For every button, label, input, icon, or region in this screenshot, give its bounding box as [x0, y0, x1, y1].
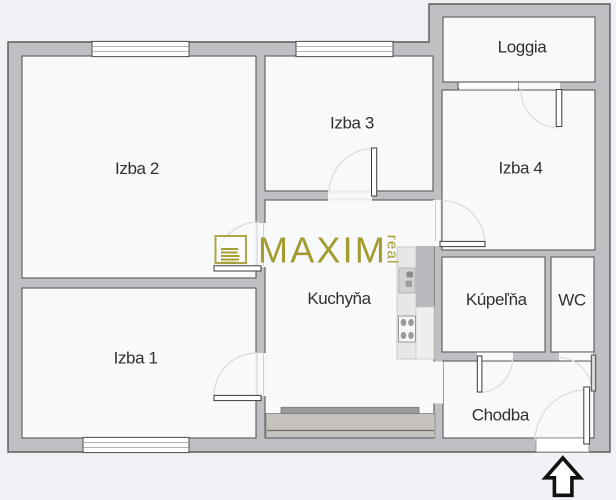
svg-text:Kúpeľňa: Kúpeľňa — [466, 290, 528, 309]
svg-text:Izba 4: Izba 4 — [499, 158, 543, 177]
svg-text:Izba 1: Izba 1 — [114, 349, 158, 368]
svg-text:Izba 2: Izba 2 — [115, 159, 159, 178]
svg-text:MAXIM: MAXIM — [258, 230, 387, 271]
svg-text:Izba 3: Izba 3 — [330, 114, 374, 133]
svg-text:Kuchyňa: Kuchyňa — [307, 289, 371, 308]
svg-text:real: real — [384, 235, 401, 265]
svg-text:WC: WC — [558, 290, 586, 309]
svg-text:Chodba: Chodba — [472, 406, 530, 425]
svg-text:Loggia: Loggia — [498, 38, 548, 57]
